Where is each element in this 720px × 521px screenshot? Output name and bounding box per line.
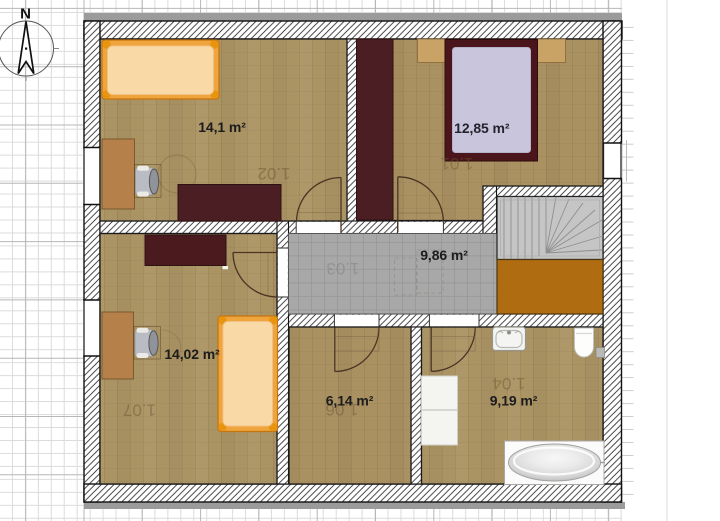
svg-text:N: N <box>20 6 31 23</box>
svg-text:9,86 m²: 9,86 m² <box>420 247 468 263</box>
svg-text:14,1 m²: 14,1 m² <box>198 119 246 135</box>
svg-text:9,19 m²: 9,19 m² <box>490 393 538 409</box>
svg-text:1.04: 1.04 <box>492 374 525 393</box>
svg-text:1.03: 1.03 <box>326 259 359 278</box>
svg-text:12,85 m²: 12,85 m² <box>454 120 510 136</box>
svg-text:1.02: 1.02 <box>257 164 290 183</box>
svg-text:14,02 m²: 14,02 m² <box>164 346 220 362</box>
svg-text:1.07: 1.07 <box>123 401 156 420</box>
svg-text:1.01: 1.01 <box>440 154 473 173</box>
svg-text:6,14 m²: 6,14 m² <box>326 393 374 409</box>
